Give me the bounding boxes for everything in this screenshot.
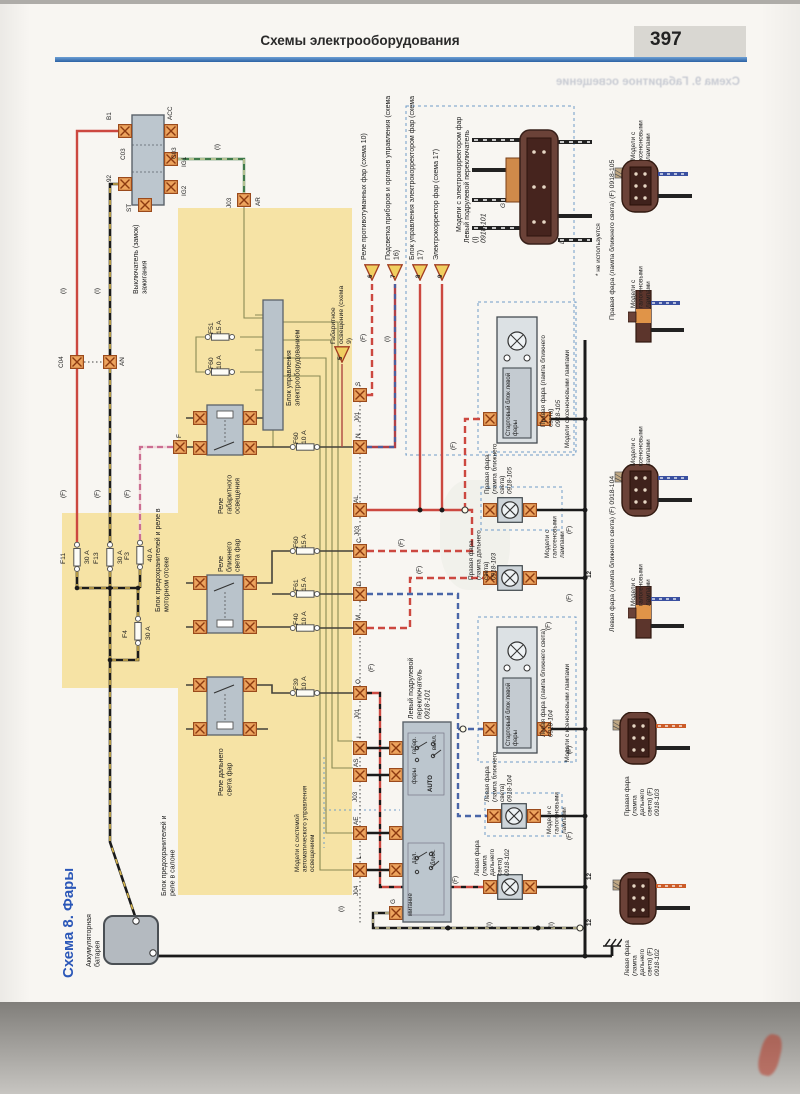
- right-low-xenon-label: Правая фара (лампа ближнего света) 0918-…: [540, 315, 563, 427]
- pin-n: N: [355, 428, 363, 438]
- pin-ar: AR: [255, 190, 263, 206]
- pin-as: AS: [353, 754, 361, 767]
- wire-f-b3: (F): [566, 738, 574, 754]
- ref6-label: Реле противотуманных фар (схема 10): [361, 108, 369, 260]
- wire-f-m: (F): [416, 558, 424, 574]
- left-low-halogen-label: Левая фара (лампа ближнего света) 0918-1…: [484, 750, 514, 802]
- wire-f-c: (F): [398, 531, 406, 547]
- battery-label: Аккумуляторная батарея: [86, 893, 103, 967]
- fuse-f60-3-label: F6015 A: [293, 524, 309, 548]
- pin-ig1: IG1: [181, 147, 189, 167]
- xenon-starter-left-label: Стартовый блок левой фары: [506, 682, 520, 746]
- right-low-halogen-label: Правая фара (лампа ближнего света) 0918-…: [484, 442, 514, 494]
- relay-low-beam: [194, 575, 257, 633]
- fuse-f11-name: F11: [60, 542, 68, 564]
- pin-c03-r: C03: [171, 139, 179, 159]
- ignition-label: Выключатель (замок) зажигания: [133, 210, 150, 294]
- gnd-12-1: 12: [586, 564, 594, 578]
- ref5-label: Габаритное освещение (схема 9): [330, 284, 354, 344]
- ref9-num: 9: [438, 266, 445, 278]
- fuse-f60-1-label: F6010 A: [208, 345, 224, 369]
- xenon-starter-right-label: Стартовый блок левой фары: [506, 372, 520, 436]
- wire-i-1: (I): [60, 278, 68, 294]
- ignition-switch: [119, 115, 178, 211]
- pin-acc: ACC: [167, 100, 175, 120]
- right-high-label: Правая фара (лампа дальнего света) 0918-…: [468, 524, 498, 580]
- picto-pin-l: L: [559, 232, 567, 244]
- xenon-models-right-label: Модели с ксеноновыми лампами: [564, 306, 572, 448]
- auto-models-label: Модели с системой автоматического управл…: [294, 772, 317, 872]
- wire-f-s: (F): [360, 326, 368, 342]
- pin-j01-o: J01: [354, 703, 362, 719]
- control-unit-label: Блок управления электрооборудованием: [286, 298, 303, 406]
- pin-j03-as: J03: [352, 786, 360, 802]
- ref6-num: 6: [368, 266, 375, 278]
- switch-pos-off: выкл.: [432, 728, 439, 750]
- left-low-xenon-label: Левая фара (лампа ближнего света) 0918-1…: [540, 625, 555, 737]
- pin-ae: AE: [353, 812, 361, 825]
- pin-st: ST: [126, 198, 134, 212]
- pin-c03-l: C03: [120, 140, 128, 160]
- wire-f-b5: (F): [452, 868, 460, 884]
- ground-symbol: [603, 939, 622, 946]
- wire-i-g2: (I): [486, 912, 494, 928]
- margin-xenon-models-1: Модели с ксеноновыми лампами: [630, 102, 653, 160]
- wire-f-3: (F): [124, 482, 132, 498]
- pin-al: AL: [353, 489, 361, 503]
- pin-j04: J04: [353, 880, 361, 896]
- pin-an: AN: [119, 350, 127, 366]
- relay-parking: [194, 405, 257, 455]
- switch-pos-flash: мигание: [408, 884, 415, 916]
- wire-f-1: (F): [60, 482, 68, 498]
- column-switch-label: Левый подрулевой переключатель 0918-101: [408, 645, 433, 719]
- margin-right-high-code: Правая фара (лампа дальнего света) (F) 0…: [624, 770, 662, 816]
- gnd-12-3: 12: [586, 912, 594, 926]
- fuse-f3-amp: 40 A: [147, 538, 155, 562]
- ref9-label: Электрокорректор фар (схема 17): [433, 140, 441, 260]
- ref8-label: Блок управления электрокорректором фар (…: [409, 95, 426, 260]
- wire-f-b1: (F): [566, 518, 574, 534]
- left-high-label: Левая фара (лампа дальнего света) 0918-1…: [474, 830, 512, 876]
- relay-high-beam: [194, 677, 257, 735]
- fuse-f51-label: F5115 A: [208, 310, 224, 334]
- switch-pos-auto: AUTO: [428, 766, 435, 792]
- margin-xenon-models-2: Модели с ксеноновыми лампами: [630, 408, 653, 466]
- wire-i-2: (I): [94, 278, 102, 294]
- wire-f-pair: (F): [545, 614, 553, 630]
- pin-o: O: [355, 674, 363, 684]
- margin-halogen-models-2: Модели с галогеновыми лампами: [630, 548, 653, 606]
- relay-parking-label: Реле габаритного освещения: [218, 458, 243, 514]
- pin-c04: C04: [58, 348, 66, 368]
- fuse-f4-amp: 30 A: [145, 616, 153, 640]
- fuse-f61-label: F6115 A: [293, 567, 309, 591]
- diagram-title: Схема 8. Фары: [60, 852, 78, 978]
- margin-left-low-code: Левая фара (лампа ближнего света) (F) 09…: [609, 424, 617, 632]
- picto-pin-g: G: [500, 196, 508, 208]
- scanned-page: Схемы электрооборудования 397 Схема 9. Г…: [0, 0, 800, 1094]
- switch-pin-wires: [367, 748, 389, 870]
- wire-f-b2: (F): [566, 586, 574, 602]
- battery: [104, 916, 158, 964]
- pin-d: D: [356, 576, 364, 586]
- wire-i-n: (I): [384, 326, 392, 342]
- relay-high-label: Реле дальнего света фар: [218, 740, 235, 796]
- margin-left-high-code: Левая фара (лампа дальнего света) (F) 09…: [624, 930, 662, 976]
- pin-l: L: [356, 851, 364, 859]
- fuse-f60-2-label: F6010 A: [293, 420, 309, 444]
- pin-92: 92: [106, 168, 114, 182]
- margin-halogen-models-1: Модели с галогеновыми лампами: [630, 250, 653, 308]
- engine-fusebox-label: Блок предохранителей и реле в моторном о…: [155, 500, 172, 612]
- halogen-models-right-label: Модели с галогеновыми лампами: [544, 500, 567, 558]
- column-switch-top-label: Левый подрулевой переключатель (I) 0918-…: [464, 125, 489, 243]
- wire-i-3: (I): [214, 134, 222, 150]
- fuse-f11-amp: 30 A: [84, 540, 92, 564]
- fuse-f40-label: F4010 A: [293, 601, 309, 625]
- switch-pos-low: ближ.: [431, 843, 438, 865]
- pin-c: C: [356, 533, 364, 543]
- wire-i-g1: (I): [338, 896, 346, 912]
- pin-j03-ar: J03: [226, 190, 234, 208]
- ref8-num: 8: [416, 266, 423, 278]
- fuse-f3-name: F3: [124, 540, 132, 560]
- ref7-num: 7: [391, 266, 398, 278]
- margin-unused-note: * не используется: [595, 212, 603, 276]
- switch-pos-high: дал.: [412, 846, 419, 864]
- fuse-f4-name: F4: [122, 618, 130, 638]
- fuse-f13-name: F13: [93, 542, 101, 564]
- pin-f: F: [176, 428, 184, 438]
- pin-b1: B1: [106, 104, 114, 120]
- pin-m: M: [355, 609, 363, 620]
- fuse-f39-label: F3910 A: [293, 666, 309, 690]
- wire-f-b4: (F): [566, 824, 574, 840]
- pin-j01-s: J01: [354, 406, 362, 422]
- wire-f-2: (F): [94, 482, 102, 498]
- control-unit: [263, 300, 283, 430]
- margin-right-low-code: Правая фара (лампа ближнего света) (F) 0…: [609, 112, 617, 320]
- pin-g: G: [390, 894, 398, 904]
- gnd-12-2: 12: [586, 866, 594, 880]
- pin-s: S: [355, 376, 363, 386]
- switch-pos-park: габар.: [412, 730, 419, 754]
- pin-ig2: IG2: [181, 176, 189, 196]
- pin-i: I: [356, 730, 364, 738]
- wire-f-o: (F): [368, 656, 376, 672]
- switch-pos-head: фары: [412, 762, 419, 784]
- cabin-fusebox-label: Блок предохранителей и реле в салоне: [161, 810, 178, 896]
- wire-i-g3: (I): [548, 912, 556, 928]
- ref7-label: Подсветка приборов и органов управления …: [385, 95, 402, 260]
- ref5-num: 5: [338, 348, 345, 360]
- relay-low-label: Реле ближнего света фар: [218, 524, 243, 572]
- wire-f-xen: (F): [450, 434, 458, 450]
